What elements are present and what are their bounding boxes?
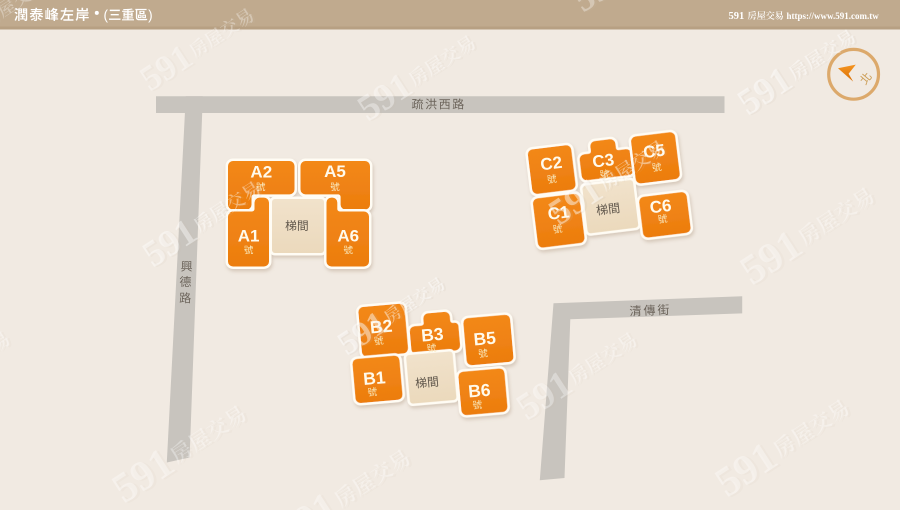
svg-text:A1: A1 [238, 227, 260, 246]
svg-text:B3: B3 [420, 324, 444, 346]
svg-text:B6: B6 [467, 380, 491, 402]
svg-text:): ) [148, 8, 153, 23]
svg-text:C6: C6 [649, 196, 673, 218]
svg-text:C3: C3 [591, 150, 615, 172]
svg-text:https://www.591.com.tw: https://www.591.com.tw [787, 11, 880, 21]
svg-text:B1: B1 [362, 367, 386, 389]
svg-text:B5: B5 [473, 328, 497, 350]
svg-text:591: 591 [729, 11, 745, 22]
svg-text:(: ( [104, 8, 109, 23]
svg-text:A5: A5 [324, 162, 346, 181]
svg-text:C2: C2 [539, 153, 563, 175]
svg-text:A6: A6 [337, 227, 359, 246]
svg-text:A2: A2 [250, 163, 272, 182]
